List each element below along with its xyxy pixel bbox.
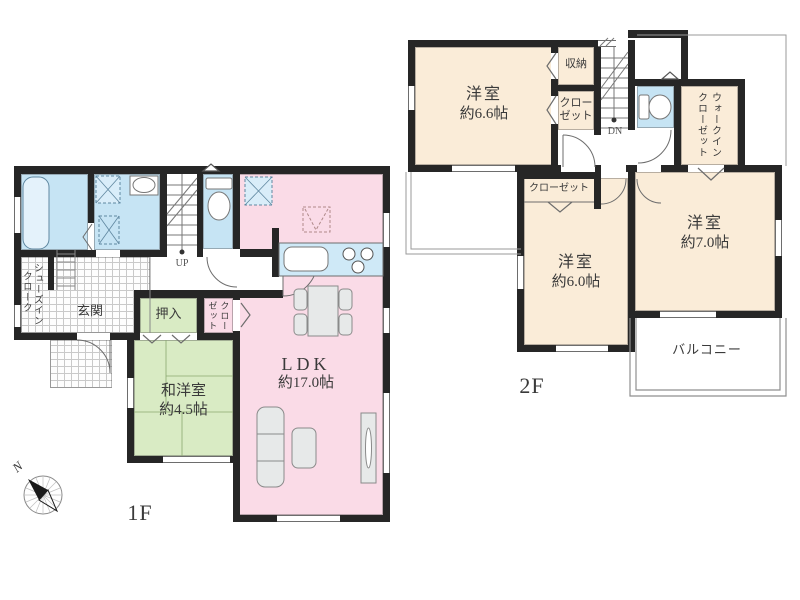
wall <box>88 166 94 223</box>
window <box>383 213 390 247</box>
bathroom-door-opening <box>88 223 94 250</box>
toilet-door-opening <box>205 249 233 257</box>
wall <box>674 79 745 86</box>
roof-outline-2f-left <box>406 172 521 254</box>
toilet-1f-door-arc <box>207 257 237 287</box>
toilet-room-1f <box>203 174 233 249</box>
entrance-porch <box>50 340 112 388</box>
balcony-label: バルコニー <box>662 343 752 358</box>
wall <box>674 79 681 172</box>
window <box>383 308 390 333</box>
window <box>277 515 340 522</box>
wall <box>14 333 134 340</box>
closet-1f-label-col2: ゼット <box>207 301 217 331</box>
window <box>163 456 230 463</box>
bathroom-1f <box>21 174 88 250</box>
toilet-room-2f <box>637 86 674 128</box>
stairs-1f <box>167 174 197 255</box>
wall <box>628 30 688 38</box>
window <box>517 256 524 289</box>
bedroom-70-label: 洋室 <box>635 215 775 233</box>
closet-upper-label-line1: クロー <box>558 97 594 110</box>
ldk-room <box>237 174 383 515</box>
window <box>127 378 134 408</box>
wall <box>233 166 240 249</box>
wall <box>628 172 635 352</box>
wall <box>594 172 601 209</box>
stairs-dn-label: DN <box>600 126 630 138</box>
toilet-2f-vent <box>662 72 678 79</box>
wall <box>134 290 283 298</box>
wall <box>738 79 745 172</box>
stairs-2f <box>600 38 628 128</box>
bedroom-70-door-opening <box>637 165 661 172</box>
compass <box>24 476 62 514</box>
window <box>14 197 21 233</box>
ldk-size-label: 約17.0帖 <box>246 375 366 392</box>
closet-lower-label: クローゼット <box>524 183 594 195</box>
stairs-up-label: UP <box>167 258 197 270</box>
wall <box>48 257 54 290</box>
floor2-label: 2F <box>512 373 552 398</box>
stairs-top-window <box>598 40 616 47</box>
washitsu-size-label: 約4.5帖 <box>134 402 233 419</box>
wall <box>517 172 601 179</box>
ldk-label: LDK <box>246 354 366 375</box>
wall <box>628 86 635 130</box>
compass-north-label: N <box>6 455 31 479</box>
storage-opening <box>551 53 558 79</box>
shoes-closet-label-col2: クローク <box>20 271 31 313</box>
bedroom-66-door-opening <box>561 165 595 172</box>
window <box>775 220 782 256</box>
wic-label-col1: ウォークイン <box>709 92 721 158</box>
bedroom-60-size-label: 約6.0帖 <box>524 274 628 291</box>
wall <box>197 298 204 333</box>
closet-upper-label-line2: ゼット <box>558 110 594 123</box>
bedroom-70-size-label: 約7.0帖 <box>635 235 775 252</box>
washitsu-label: 和洋室 <box>134 383 233 400</box>
bedroom-66-door-arc <box>563 135 595 167</box>
window <box>408 86 415 110</box>
wall <box>408 40 604 47</box>
wall <box>14 250 167 257</box>
storage-2f-label: 収納 <box>558 58 594 71</box>
closet-1f-opening <box>233 300 240 331</box>
kitchen-wall-stub <box>272 228 279 277</box>
window <box>452 165 515 172</box>
window <box>660 311 716 318</box>
compass-needle <box>28 479 48 500</box>
washroom-1f <box>94 174 160 250</box>
wic-label-col2: クローゼット <box>695 92 707 158</box>
genkan-label: 玄関 <box>60 304 120 319</box>
wall <box>197 166 203 257</box>
bedroom-60-door-opening <box>601 165 626 172</box>
wall <box>594 40 601 135</box>
bedroom-66-label: 洋室 <box>415 86 553 104</box>
wall <box>160 166 167 257</box>
floor-plan-canvas: LDK 約17.0帖 和洋室 約4.5帖 玄関 押入 クロー ゼット シューズイ… <box>0 0 800 600</box>
wall <box>197 333 240 340</box>
shoes-closet-label-col1: シューズイン <box>31 263 42 326</box>
washroom-door-opening <box>96 250 120 257</box>
window <box>556 345 608 352</box>
floor1-label: 1F <box>120 500 160 525</box>
front-door-opening <box>77 333 110 340</box>
bedroom-60-label: 洋室 <box>524 254 628 272</box>
oshiire-label: 押入 <box>140 307 197 322</box>
wic-opening <box>688 165 724 172</box>
toilet-2f-door-arc <box>638 130 671 163</box>
window <box>383 393 390 473</box>
closet-1f-label-col1: クロー <box>219 301 229 331</box>
bedroom-66-size-label: 約6.6帖 <box>415 106 553 123</box>
